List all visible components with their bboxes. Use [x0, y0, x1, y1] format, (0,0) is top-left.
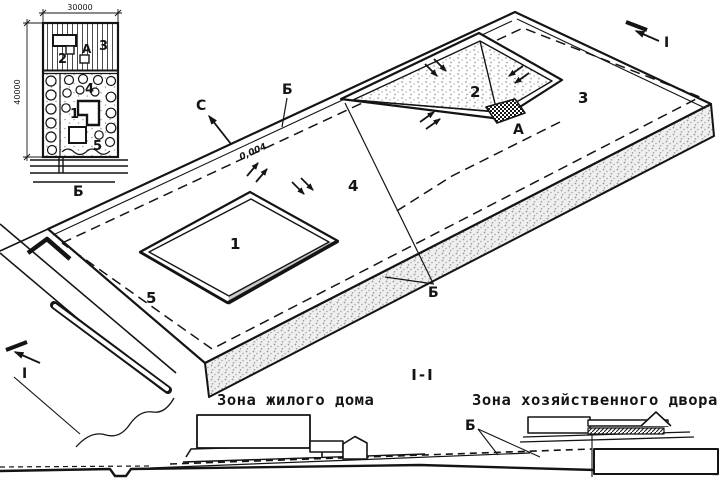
north-label: С: [196, 98, 206, 114]
section-title: I-I: [411, 366, 434, 384]
shed-profile: [343, 437, 367, 460]
section-marker-top-right: [626, 22, 659, 41]
inset-street-label: Б: [73, 184, 84, 200]
section-marker-bottom-left: [6, 342, 40, 363]
dim-left: 40000: [13, 79, 22, 104]
inset-shed-building: [53, 35, 76, 46]
section-view: [0, 412, 718, 477]
hatched-roof-strip: [588, 428, 664, 434]
figure-canvas: С Б Б 2 3 4 1 5 А I I 0,004: [0, 0, 720, 481]
inset-street-lines: [30, 157, 128, 182]
axon-zone3-label: 3: [578, 89, 588, 107]
terrain-wavy-line: [76, 398, 174, 447]
gable-profile: [641, 412, 671, 426]
north-arrow: [209, 116, 231, 144]
section-boundary-label: Б: [465, 418, 476, 434]
inset-zone2-label: 2: [58, 52, 67, 67]
axon-zone1-label: 1: [230, 235, 240, 253]
section-label-top: I: [664, 35, 669, 51]
inset-zone5-label: 5: [93, 139, 102, 154]
axon-zone5-label: 5: [146, 289, 156, 307]
axon-zone2-label: 2: [470, 83, 480, 101]
terrace-block: [594, 449, 718, 474]
right-zone-caption: Зона хозяйственного двора: [472, 391, 718, 409]
house-profile: [183, 415, 425, 462]
boundary-label-bottom: Б: [428, 285, 439, 301]
left-zone-caption: Зона жилого дома: [217, 391, 374, 409]
inset-plan: [23, 9, 128, 182]
inset-point-a-label: А: [82, 42, 92, 56]
section-cut-line-lower: [14, 377, 80, 434]
axon-zone4-label: 4: [348, 177, 358, 195]
dim-top: 30000: [67, 3, 92, 12]
boundary-label-top: Б: [282, 82, 293, 98]
yard-profile: [520, 412, 718, 477]
inset-zone4-label: 4: [85, 82, 94, 97]
drain-label: А: [513, 122, 524, 138]
inset-zone1-label: 1: [70, 107, 79, 122]
section-label-bottom: I: [22, 366, 27, 382]
inset-garage-building: [69, 127, 86, 143]
site-planning-diagram: С Б Б 2 3 4 1 5 А I I 0,004: [0, 0, 720, 481]
inset-zone3-label: 3: [99, 39, 108, 54]
